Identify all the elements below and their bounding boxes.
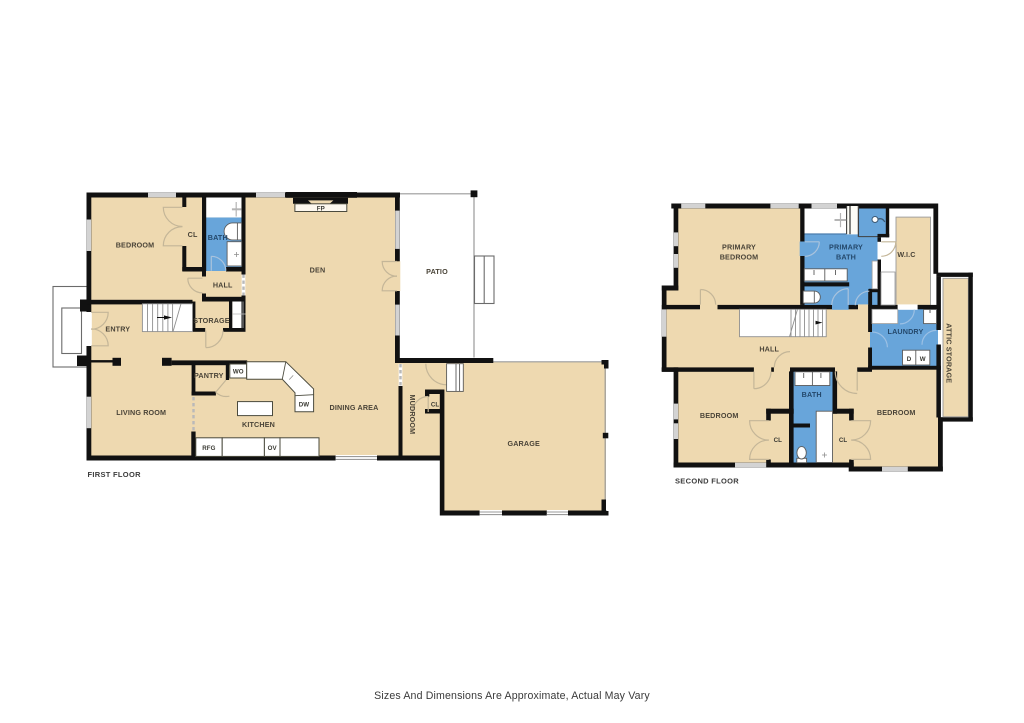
svg-text:ATTIC STORAGE: ATTIC STORAGE — [945, 323, 954, 383]
svg-text:ENTRY: ENTRY — [105, 325, 130, 334]
svg-text:Sizes And Dimensions Are Appro: Sizes And Dimensions Are Approximate, Ac… — [374, 690, 650, 702]
svg-text:D: D — [907, 356, 912, 363]
svg-text:DINING AREA: DINING AREA — [330, 403, 379, 412]
svg-text:OV: OV — [268, 445, 278, 452]
svg-text:CL: CL — [188, 230, 198, 239]
svg-text:CL: CL — [839, 437, 848, 444]
svg-text:CL: CL — [431, 401, 440, 408]
svg-text:BEDROOM: BEDROOM — [700, 411, 739, 420]
svg-text:BATH: BATH — [208, 233, 228, 242]
svg-text:W.I.C: W.I.C — [897, 250, 915, 259]
svg-text:BATH: BATH — [802, 390, 822, 399]
svg-text:LIVING ROOM: LIVING ROOM — [116, 408, 166, 417]
svg-text:GARAGE: GARAGE — [507, 439, 540, 448]
svg-text:STORAGE: STORAGE — [193, 316, 230, 325]
svg-text:DW: DW — [299, 402, 310, 409]
svg-text:BEDROOM: BEDROOM — [720, 253, 759, 262]
svg-text:KITCHEN: KITCHEN — [242, 420, 275, 429]
svg-text:SECOND FLOOR: SECOND FLOOR — [675, 477, 739, 486]
svg-text:PATIO: PATIO — [426, 267, 448, 276]
svg-text:PRIMARY: PRIMARY — [829, 243, 863, 252]
svg-text:BEDROOM: BEDROOM — [877, 408, 916, 417]
svg-text:WO: WO — [233, 369, 244, 376]
svg-text:DEN: DEN — [310, 266, 326, 275]
svg-text:FP: FP — [317, 205, 325, 212]
svg-text:PANTRY: PANTRY — [194, 371, 224, 380]
svg-text:BATH: BATH — [836, 253, 856, 262]
svg-text:CL: CL — [774, 437, 783, 444]
svg-text:BEDROOM: BEDROOM — [116, 241, 155, 250]
svg-text:MUDROOM: MUDROOM — [408, 395, 417, 435]
svg-text:HALL: HALL — [759, 344, 779, 353]
svg-text:FIRST FLOOR: FIRST FLOOR — [88, 470, 142, 479]
svg-text:RFG: RFG — [202, 445, 215, 452]
svg-text:HALL: HALL — [213, 280, 233, 289]
svg-text:PRIMARY: PRIMARY — [722, 243, 756, 252]
svg-text:W: W — [920, 356, 926, 363]
svg-text:LAUNDRY: LAUNDRY — [888, 327, 924, 336]
